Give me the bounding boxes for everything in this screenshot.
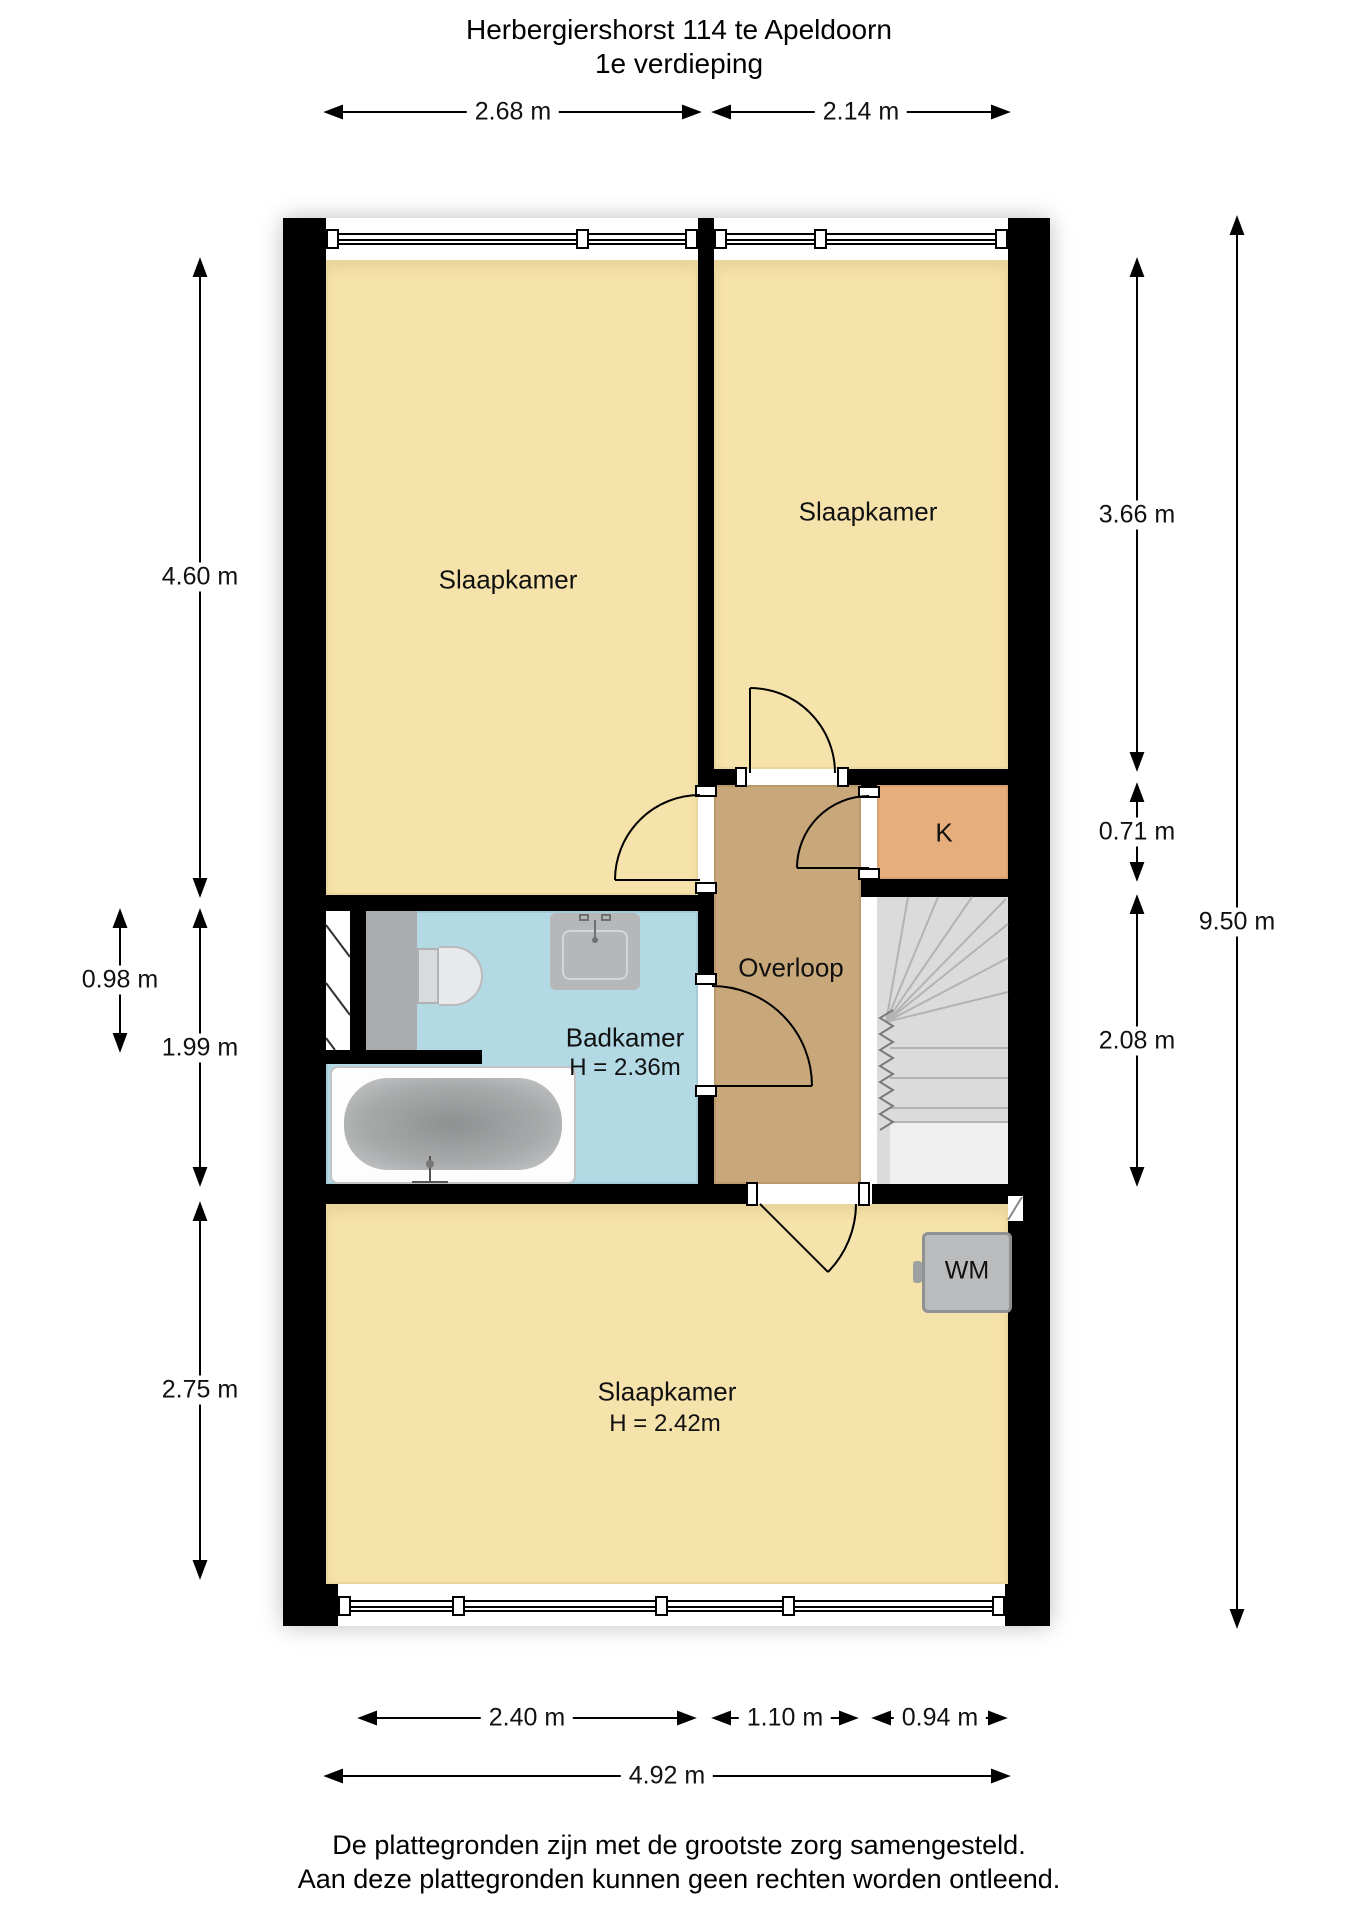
dim-right-2-08: 2.08 m: [1091, 1027, 1183, 1056]
dim-bottom-0-94: 0.94 m: [894, 1704, 986, 1733]
dim-bottom-4-92: 4.92 m: [621, 1762, 713, 1791]
dim-right-9-50: 9.50 m: [1191, 908, 1283, 937]
door-arc-closet: [797, 796, 869, 868]
plan-graphics: [0, 0, 1358, 1920]
room-height-bedroom-bottom: H = 2.42m: [609, 1410, 720, 1438]
washing-machine-label: WM: [945, 1257, 989, 1286]
door-arc-bedroom-bottom: [760, 1204, 856, 1272]
room-label-bedroom-top-right: Slaapkamer: [799, 497, 938, 528]
dim-top-left: 2.68 m: [467, 98, 559, 127]
bathtub-faucet-icon: [412, 1156, 448, 1182]
shaft-hatch-lines: [326, 925, 350, 1050]
dim-bottom-1-10: 1.10 m: [739, 1704, 831, 1733]
stairs-treads: [886, 897, 1008, 1122]
room-label-landing: Overloop: [738, 953, 844, 984]
dim-left-0-98: 0.98 m: [74, 966, 166, 995]
footer-line-2: Aan deze plattegronden kunnen geen recht…: [0, 1864, 1358, 1895]
dim-bottom-2-40: 2.40 m: [481, 1704, 573, 1733]
dimension-arrows: [114, 106, 1243, 1782]
room-label-bedroom-bottom: Slaapkamer: [598, 1377, 737, 1408]
room-label-closet: K: [935, 818, 952, 849]
dim-right-0-71: 0.71 m: [1091, 818, 1183, 847]
dim-left-4-60: 4.60 m: [154, 563, 246, 592]
door-arc-bedroom-top-left: [615, 795, 700, 880]
dim-top-right: 2.14 m: [815, 98, 907, 127]
room-height-bathroom: H = 2.36m: [569, 1054, 680, 1082]
door-arc-bedroom-top-right: [750, 688, 835, 773]
floorplan-page: Herbergiershorst 114 te Apeldoorn 1e ver…: [0, 0, 1358, 1920]
dim-left-2-75: 2.75 m: [154, 1376, 246, 1405]
room-label-bathroom: Badkamer: [566, 1023, 685, 1054]
wall-notch-line: [1008, 1197, 1022, 1220]
sink-faucet-icon: [580, 915, 610, 943]
dim-right-3-66: 3.66 m: [1091, 501, 1183, 530]
dim-left-1-99: 1.99 m: [154, 1034, 246, 1063]
footer-line-1: De plattegronden zijn met de grootste zo…: [0, 1830, 1358, 1861]
room-label-bedroom-top-left: Slaapkamer: [439, 565, 578, 596]
door-arc-bathroom: [712, 986, 812, 1086]
stairs-cut-serration: [880, 1010, 893, 1130]
